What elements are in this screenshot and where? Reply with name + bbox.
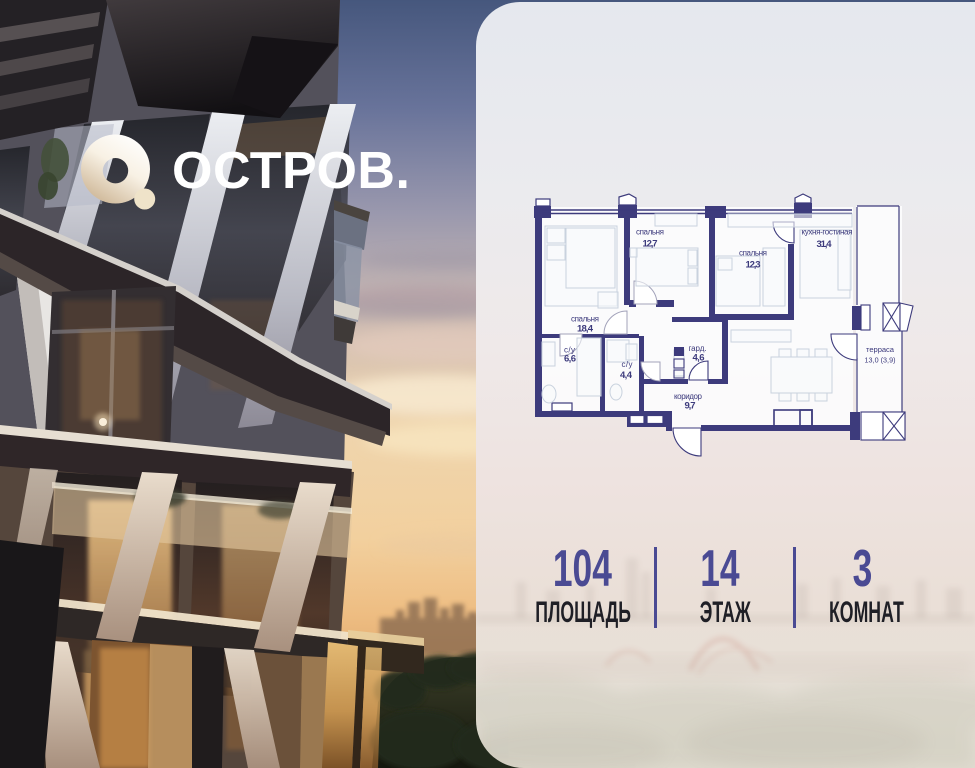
svg-text:спальня: спальня — [636, 228, 664, 237]
svg-text:12,7: 12,7 — [643, 239, 658, 250]
svg-text:4,4: 4,4 — [620, 370, 633, 381]
svg-text:6,6: 6,6 — [564, 354, 576, 365]
svg-text:спальня: спальня — [739, 249, 767, 258]
svg-text:18,4: 18,4 — [577, 324, 594, 335]
svg-text:9,7: 9,7 — [685, 401, 696, 412]
svg-text:кухня-гостиная: кухня-гостиная — [802, 228, 853, 237]
svg-text:4,6: 4,6 — [693, 353, 705, 364]
svg-text:с/у: с/у — [622, 360, 633, 369]
svg-text:31,4: 31,4 — [817, 239, 833, 250]
svg-text:терраса: терраса — [866, 345, 895, 354]
svg-text:12,3: 12,3 — [746, 260, 761, 271]
svg-text:13,0 (3,9): 13,0 (3,9) — [865, 356, 896, 365]
svg-text:спальня: спальня — [571, 315, 599, 324]
